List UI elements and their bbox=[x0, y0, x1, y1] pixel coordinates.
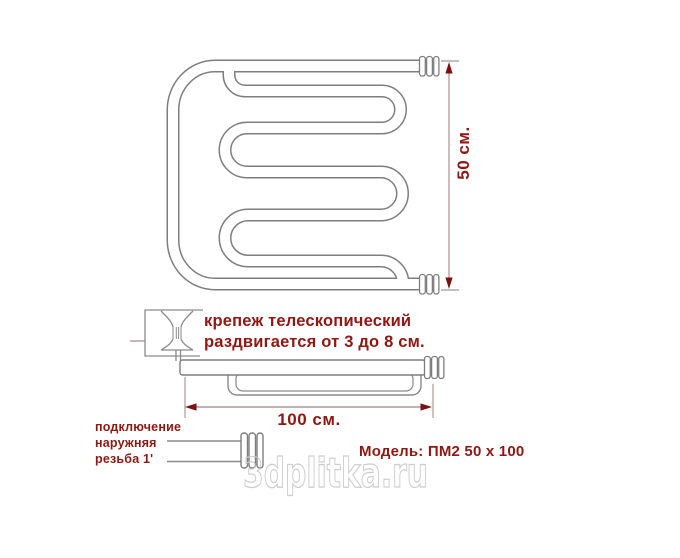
bracket-detail bbox=[130, 310, 203, 361]
side-view bbox=[180, 357, 444, 396]
arrow-up-icon bbox=[445, 62, 452, 74]
model-label: Модель: ПМ2 50 х 100 bbox=[359, 443, 524, 460]
threaded-fitting-side bbox=[425, 357, 444, 379]
connection-note: подключение наружняя резьба 1' bbox=[95, 419, 181, 467]
towel-rail-drawing: 3dplitka.ru bbox=[0, 0, 680, 558]
bracket-funnel-bottom bbox=[161, 339, 193, 350]
side-view-main-tube bbox=[180, 360, 425, 375]
threaded-fitting-bottom bbox=[420, 275, 439, 295]
arrow-down-icon bbox=[445, 278, 452, 290]
product-diagram: 3dplitka.ru 50 см. крепеж телескопически… bbox=[0, 0, 680, 558]
fastener-note-line2: раздвигается от 3 до 8 см. bbox=[204, 332, 425, 353]
serpentine-tube-white bbox=[225, 66, 403, 283]
front-view-tubes bbox=[173, 57, 439, 295]
arrow-right-icon bbox=[421, 403, 433, 410]
height-dimension-label: 50 см. bbox=[454, 110, 472, 196]
threaded-fitting-top bbox=[420, 57, 439, 77]
fastener-note-line1: крепеж телескопический bbox=[204, 311, 425, 332]
bracket-plate bbox=[145, 310, 203, 356]
fastener-note: крепеж телескопический раздвигается от 3… bbox=[204, 311, 425, 352]
connection-note-line2: наружняя bbox=[95, 435, 181, 451]
bracket-funnel-top bbox=[161, 311, 193, 327]
connection-note-line3: резьба 1' bbox=[95, 451, 181, 467]
arrow-left-icon bbox=[185, 403, 197, 410]
connection-note-line1: подключение bbox=[95, 419, 181, 435]
bracket-stem-hatch bbox=[173, 327, 181, 339]
width-dimension-label: 100 см. bbox=[250, 410, 368, 430]
